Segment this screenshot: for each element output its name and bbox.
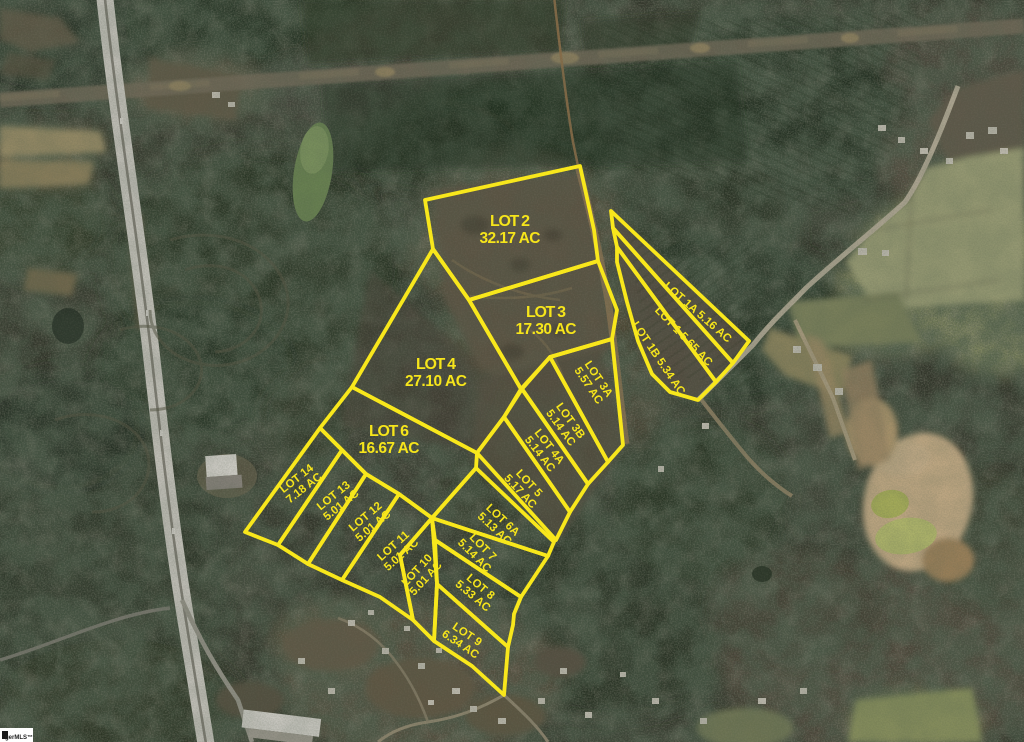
svg-text:LOT 3: LOT 3 [526, 304, 566, 321]
svg-text:gerMLS™: gerMLS™ [5, 734, 33, 741]
svg-text:27.10 AC: 27.10 AC [405, 373, 467, 390]
svg-text:17.30 AC: 17.30 AC [516, 321, 577, 338]
svg-text:16.67 AC: 16.67 AC [359, 440, 420, 457]
svg-text:LOT 6: LOT 6 [369, 423, 409, 440]
svg-text:32.17 AC: 32.17 AC [480, 230, 541, 247]
svg-text:LOT 2: LOT 2 [490, 213, 530, 230]
svg-text:LOT 4: LOT 4 [416, 356, 456, 373]
